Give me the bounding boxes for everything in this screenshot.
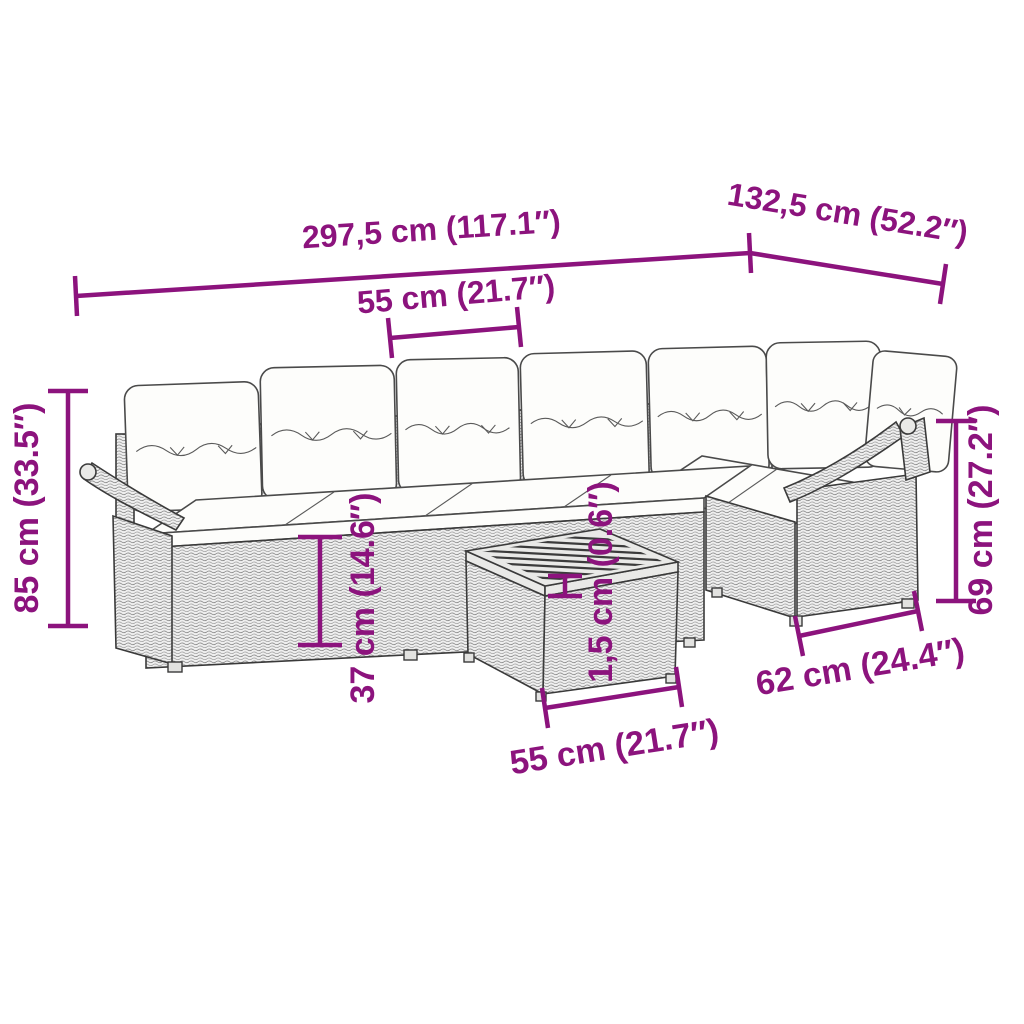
table-foot: [666, 674, 676, 683]
dimension-tick: [517, 307, 521, 347]
diagram-svg: 297,5 cm (117.1″) 132,5 cm (52.2″) 55 cm…: [0, 0, 1024, 1024]
right-arm-roll: [900, 418, 916, 434]
dimension-line: [390, 327, 519, 338]
back-pillow: [520, 351, 649, 488]
dimension-label: 62 cm (24.4″): [753, 631, 967, 703]
dimension-label: 85 cm (33.5″): [8, 403, 46, 614]
left-arm-face: [113, 516, 172, 664]
left-arm-roll: [80, 464, 96, 480]
sofa-foot: [712, 588, 722, 597]
dimension-tick: [676, 667, 682, 707]
sofa-foot: [404, 650, 417, 660]
dimension-label: 55 cm (21.7″): [507, 712, 721, 783]
dimension-label: 1,5 cm (0.6″): [582, 481, 620, 683]
dimension-seat-width: 55 cm (21.7″): [356, 267, 557, 358]
dimension-line: [750, 253, 943, 284]
sofa-foot: [902, 599, 914, 608]
dimension-label: 37 cm (14.6″): [344, 493, 382, 704]
back-pillow: [124, 381, 262, 512]
dimension-tick: [388, 318, 392, 358]
dimension-tick: [75, 276, 77, 316]
right-arm-face: [797, 474, 918, 617]
product-dimension-diagram: 297,5 cm (117.1″) 132,5 cm (52.2″) 55 cm…: [0, 0, 1024, 1024]
sofa-foot: [684, 638, 695, 647]
back-pillow: [396, 357, 521, 494]
dimension-overall-height: 85 cm (33.5″): [8, 391, 88, 626]
dimension-overall-depth: 132,5 cm (52.2″): [725, 176, 971, 304]
dimension-tick: [940, 264, 946, 304]
sofa-foot: [168, 662, 182, 672]
back-pillow: [260, 365, 397, 500]
table-foot: [464, 653, 474, 662]
dimension-label: 297,5 cm (117.1″): [301, 203, 562, 256]
table-illustration: [464, 529, 678, 701]
dimension-label: 132,5 cm (52.2″): [725, 176, 971, 251]
dimension-label: 69 cm (27.2″): [962, 405, 1000, 616]
